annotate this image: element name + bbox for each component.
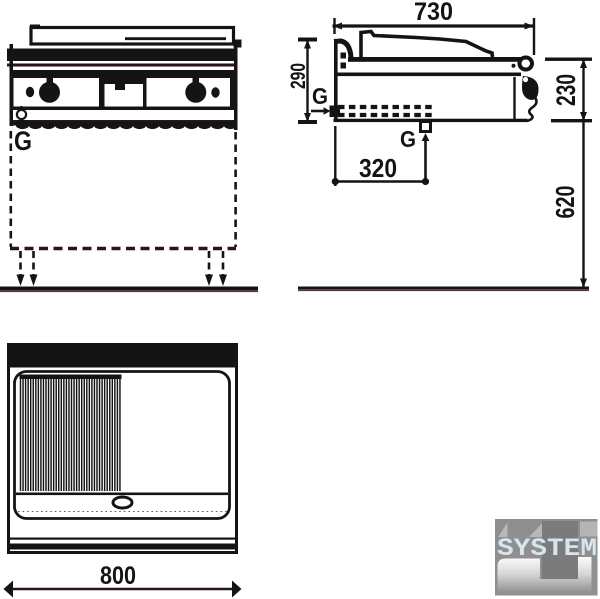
svg-text:G: G [312, 83, 328, 109]
svg-text:G: G [14, 126, 32, 156]
svg-text:730: 730 [414, 0, 453, 26]
svg-text:230: 230 [551, 74, 581, 106]
svg-text:620: 620 [550, 186, 580, 219]
svg-text:320: 320 [359, 153, 397, 183]
svg-text:800: 800 [100, 562, 136, 590]
svg-text:G: G [400, 126, 416, 152]
svg-text:290: 290 [287, 63, 310, 89]
